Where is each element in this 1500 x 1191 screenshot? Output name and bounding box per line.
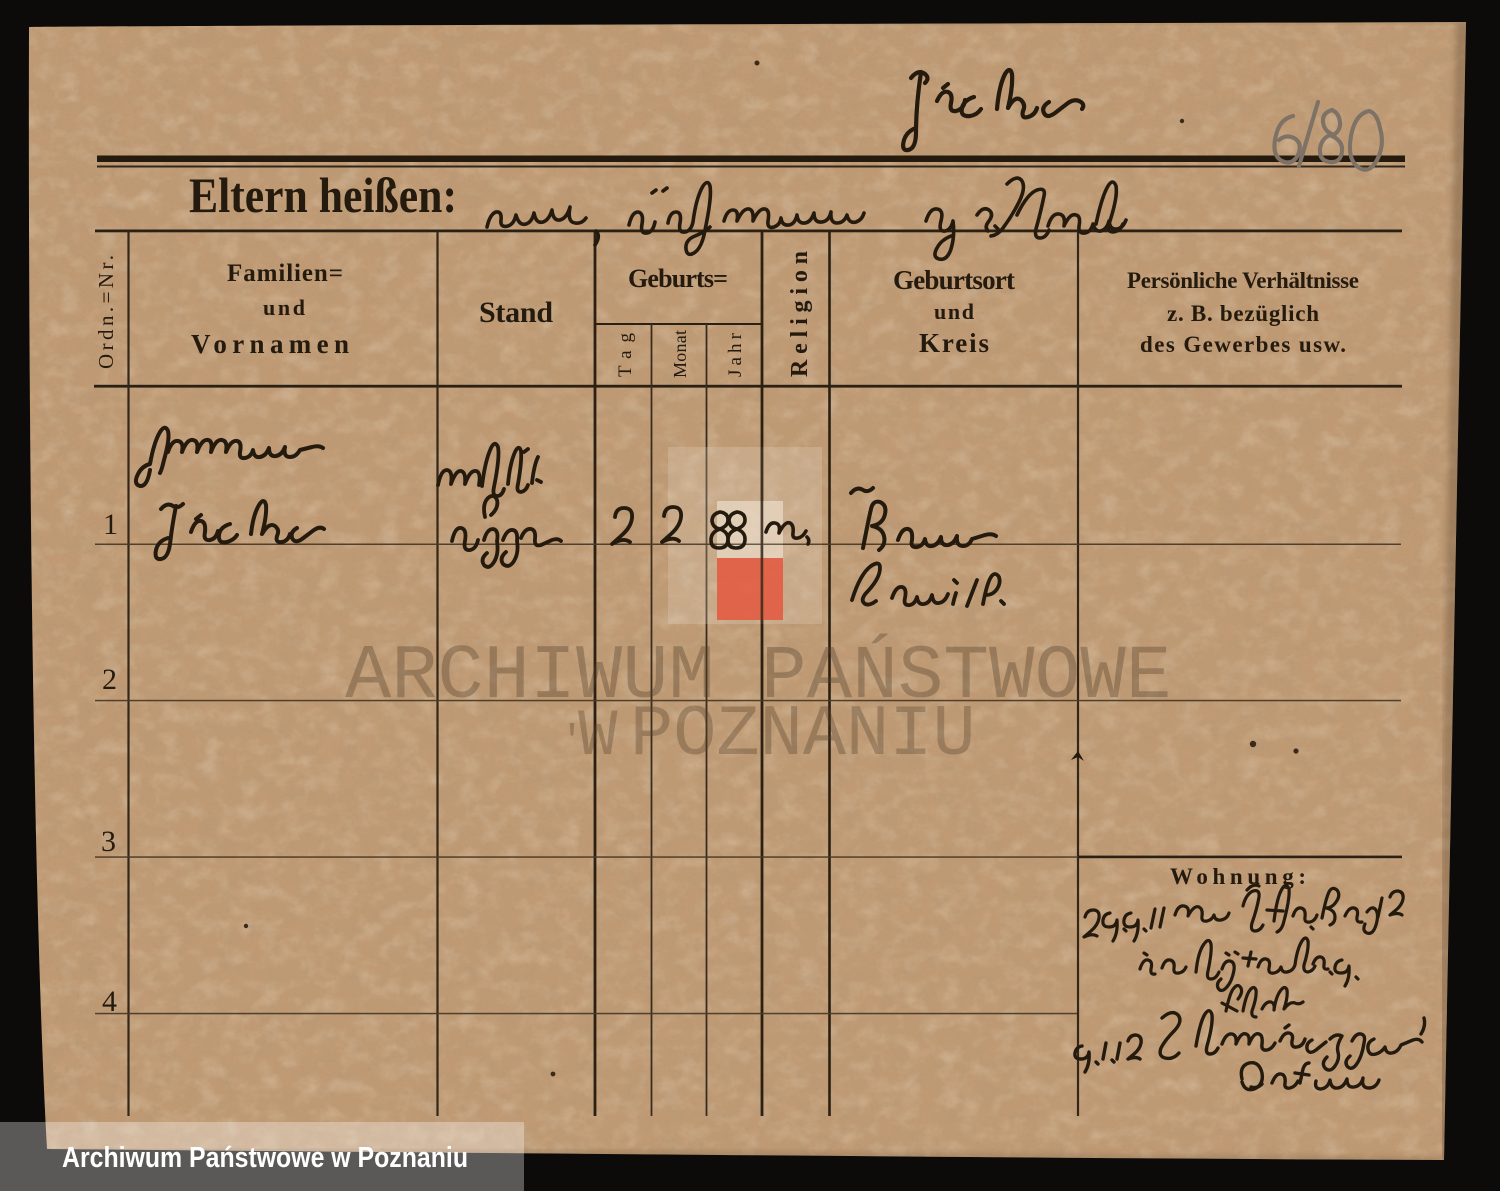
svg-text:Eltern heißen:: Eltern heißen: [189, 167, 457, 223]
svg-text:Tag: Tag [615, 333, 636, 378]
svg-text:1: 1 [103, 508, 118, 541]
svg-text:POZNANIU: POZNANIU [630, 694, 976, 776]
svg-text:Persönliche Verhältnisse: Persönliche Verhältnisse [1127, 268, 1359, 293]
svg-text:Stand: Stand [479, 296, 553, 329]
svg-text:z. B. bezüglich: z. B. bezüglich [1167, 301, 1319, 326]
svg-text:Geburtsort: Geburtsort [893, 265, 1015, 295]
svg-text:Vornamen: Vornamen [191, 329, 349, 359]
svg-text:Monat: Monat [670, 330, 690, 378]
svg-text:Geburts=: Geburts= [628, 264, 728, 293]
svg-text:4: 4 [102, 985, 117, 1018]
svg-text:2: 2 [102, 663, 117, 696]
svg-text:Familien=: Familien= [227, 260, 343, 287]
svg-text:Archiwum Państwowe w Poznaniu: Archiwum Państwowe w Poznaniu [62, 1142, 468, 1174]
svg-text:und: und [263, 295, 305, 320]
svg-text:und: und [934, 299, 974, 324]
svg-text:3: 3 [101, 825, 116, 858]
svg-text:W: W [578, 699, 618, 774]
svg-text:des Gewerbes usw.: des Gewerbes usw. [1140, 332, 1346, 357]
